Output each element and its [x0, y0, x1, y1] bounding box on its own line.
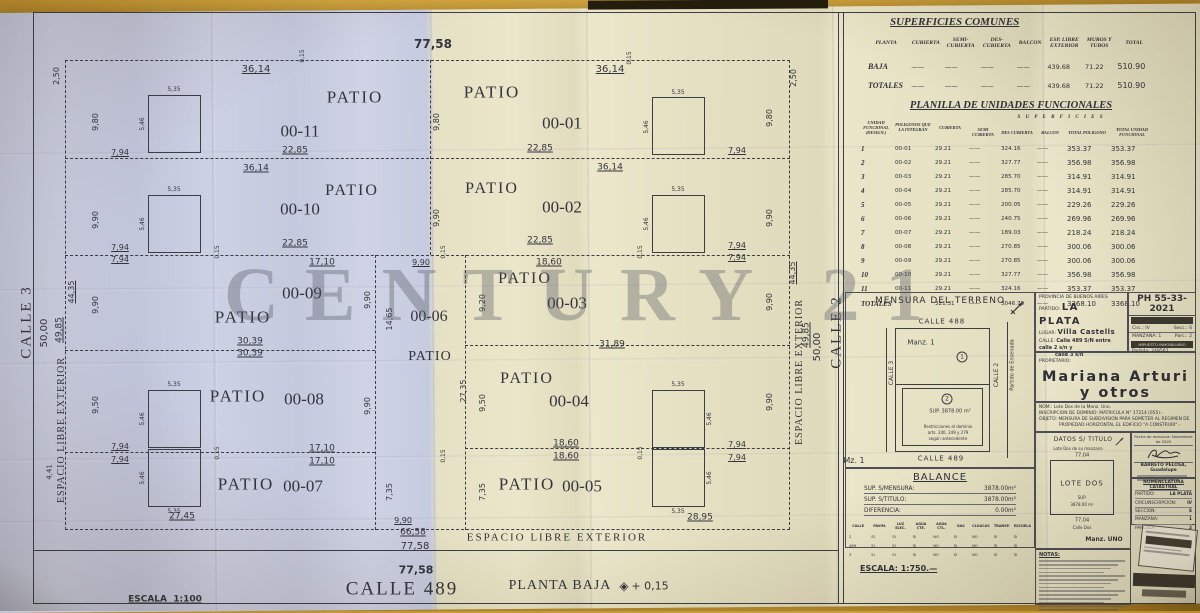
table-cell: SI [891, 542, 909, 549]
ph-number-block: PH 55-33-2021 Circ.: IV Secc.: S MANZANA… [1128, 292, 1196, 352]
table-cell: 2 [860, 157, 892, 169]
table-cell: 29.21 [934, 241, 966, 253]
balance-label: SUP. S/TITULO: [864, 497, 906, 503]
column-header: ESCUELA [1013, 521, 1032, 531]
table-cell: SI [912, 533, 930, 540]
column-header: CALLE [848, 521, 868, 531]
table-cell: SI [870, 551, 889, 558]
table-cell: 3 [848, 551, 868, 558]
superficies-comunes-title: SUPERFICIES COMUNES [862, 16, 1154, 28]
manzana-value: MANZANA: 1 [1132, 334, 1161, 339]
column-header: TRANSP. [993, 521, 1011, 531]
parc-value: Parc.: 2 [1175, 334, 1192, 339]
building-footprint [148, 195, 201, 253]
table-cell: —— [968, 185, 998, 197]
lugar-value: Villa Castells [1057, 328, 1115, 336]
table-cell: 29.21 [934, 171, 966, 183]
table-cell: 285.70 [1000, 171, 1034, 183]
nomenclatura-label: MANZANA: [1135, 517, 1158, 522]
balance-label: DIFERENCIA: [864, 508, 901, 514]
table-cell: 189.03 [1000, 227, 1034, 239]
balance-label: SUP. S/MENSURA: [864, 486, 914, 492]
table-cell: SI [953, 533, 969, 540]
plan-line [33, 550, 838, 551]
table-cell: 356.98 [1066, 269, 1108, 281]
table-cell: SI [870, 533, 889, 540]
table-cell: 00-08 [894, 241, 932, 253]
column-header: PLANTA [864, 30, 908, 56]
table-cell: 29.21 [934, 213, 966, 225]
building-footprint [652, 195, 705, 253]
table-cell: 00-01 [894, 143, 932, 155]
table-cell: 29.21 [934, 199, 966, 211]
table-cell: —— [910, 77, 941, 94]
building-footprint [652, 390, 705, 448]
column-header: CLOACAS [971, 521, 991, 531]
table-cell: SI [1013, 542, 1032, 549]
table-cell: 2 [848, 533, 868, 540]
table-cell: 270.85 [1000, 241, 1034, 253]
table-cell: 29.21 [934, 255, 966, 267]
table-cell: —— [910, 58, 941, 75]
table-cell: 353.37 [1110, 143, 1154, 155]
table-cell: —— [1036, 157, 1064, 169]
table-cell: 300.06 [1066, 255, 1108, 267]
building-footprint [148, 390, 201, 448]
table-cell: —— [980, 58, 1014, 75]
table-row: 300-0329.21——285.70——314.91314.91 [860, 171, 1154, 183]
table-cell: BAJA [864, 58, 908, 75]
table-cell: —— [944, 58, 978, 75]
table-row: 700-0729.21——189.03——218.24218.24 [860, 227, 1154, 239]
table-cell: —— [1016, 77, 1044, 94]
planilla-title: PLANILLA DE UNIDADES FUNCIONALES [858, 100, 1164, 111]
column-header: TOTAL POLIGONO [1066, 123, 1108, 141]
table-cell: 29.21 [934, 269, 966, 281]
table-cell: 270.85 [1000, 255, 1034, 267]
superficies-comunes-section: SUPERFICIES COMUNES PLANTACUBIERTASEMI- … [862, 16, 1154, 100]
nomenclatura-value: IV [1187, 501, 1192, 506]
table-cell: 229.26 [1110, 199, 1154, 211]
column-header: ESP. LIBRE EXTERIOR [1046, 30, 1082, 56]
nomenclatura-row: CIRCUNSCRIPCION:IV [1135, 498, 1192, 506]
table-cell: —— [980, 77, 1014, 94]
text-bar [1137, 475, 1187, 477]
column-header: DES- CUBIERTA [980, 30, 1014, 56]
table-cell: 300.06 [1110, 241, 1154, 253]
dashed-boundary [65, 158, 790, 159]
text-bar [1039, 590, 1125, 592]
table-cell: SI [912, 542, 930, 549]
approval-stamp [1138, 524, 1198, 572]
table-cell: SI [870, 542, 889, 549]
table-cell: SI [1013, 551, 1032, 558]
column-header: AGUA CTL. [932, 521, 950, 531]
table-row: 100-0129.21——324.16——353.37353.37 [860, 143, 1154, 155]
column-header: BALCON [1036, 123, 1064, 141]
table-row: 489SISISINOSINOSISI [848, 542, 1032, 549]
table-cell: 218.24 [1066, 227, 1108, 239]
ink-stamp [1142, 589, 1186, 598]
balance-row: SUP. S/TITULO:3878.00m² [864, 497, 1016, 505]
agrimensor-nombre: BARRETO PELOSA, Guadalupe [1134, 462, 1193, 473]
table-row: BAJA————————439.6871.22510.90 [864, 58, 1152, 75]
table-cell: 229.26 [1066, 199, 1108, 211]
objeto-line-1: OBJETO: MENSURA DE SUBDIVISION PARA SOME… [1039, 417, 1192, 423]
table-cell: SI [993, 542, 1011, 549]
table-cell: —— [968, 269, 998, 281]
table-row: 2SISISINOSINOSISI [848, 533, 1032, 540]
table-cell: 327.77 [1000, 269, 1034, 281]
text-bar [1039, 606, 1125, 608]
table-cell: 314.91 [1110, 185, 1154, 197]
location-block: PROVINCIA DE BUENOS AIRES PARTIDO: LA PL… [1035, 292, 1128, 352]
table-cell: 00-04 [894, 185, 932, 197]
firma-block: Fecha de mensura: Noviembre de 2020 BARR… [1131, 432, 1196, 478]
table-cell: NO [971, 551, 991, 558]
table-cell: 29.21 [934, 227, 966, 239]
table-cell: —— [968, 171, 998, 183]
mensura-title: MENSURA DEL TERRENO [846, 296, 1034, 306]
balance-title: BALANCE [846, 472, 1034, 483]
column-header: CUBIERTA [934, 113, 966, 141]
calle-label: CALLE: [1039, 339, 1055, 344]
table-cell: 356.98 [1110, 157, 1154, 169]
nomenclatura-value: 1 [1189, 517, 1192, 522]
column-header: SEMI- CUBIERTA [944, 30, 978, 56]
text-bar [1039, 572, 1104, 574]
dashed-boundary [465, 448, 790, 449]
column-header: S U P E R F I C I E S [968, 113, 1154, 121]
table-cell: 439.68 [1046, 77, 1082, 94]
table-cell: —— [1036, 199, 1064, 211]
table-row: 500-0529.21——200.05——229.26229.26 [860, 199, 1154, 211]
partido-value: LA PLATA [1039, 302, 1081, 327]
dashed-boundary [465, 255, 466, 530]
circ-value: Circ.: IV [1132, 326, 1150, 331]
table-row: 600-0629.21——240.75——269.96269.96 [860, 213, 1154, 225]
owner-block: Mariana Arturi y otros [1035, 352, 1196, 402]
dashed-boundary [65, 452, 375, 453]
table-cell: SI [912, 551, 930, 558]
nomenclatura-title: NOMENCLATURA CATASTRAL [1135, 480, 1192, 490]
building-footprint [652, 97, 705, 155]
inscripcion-block: NOM.: Lote Dos de la Manz. Uno. INSCRIPC… [1035, 402, 1196, 432]
ink-stamp [1133, 573, 1195, 588]
table-cell: 1 [860, 143, 892, 155]
table-cell: 269.96 [1066, 213, 1108, 225]
table-cell: —— [944, 77, 978, 94]
table-cell: NO [971, 533, 991, 540]
table-cell: 314.91 [1110, 171, 1154, 183]
impuesto-band: IMPUESTO INMOBILIARIO [1131, 341, 1193, 348]
table-cell: —— [1016, 58, 1044, 75]
table-cell: TOTALES [864, 77, 908, 94]
table-row: 400-0429.21——285.70——314.91314.91 [860, 185, 1154, 197]
table-cell: SI [953, 551, 969, 558]
table-cell: 00-02 [894, 157, 932, 169]
balance-row: DIFERENCIA:0.00m² [864, 508, 1016, 516]
building-footprint [148, 449, 201, 507]
table-cell: 00-09 [894, 255, 932, 267]
signature-icon [1144, 446, 1184, 462]
nomenclatura-row: MANZANA:1 [1135, 515, 1192, 523]
dashed-boundary [65, 350, 375, 351]
table-cell: 324.16 [1000, 143, 1034, 155]
table-cell: 269.96 [1110, 213, 1154, 225]
nomenclatura-label: SECCION: [1135, 509, 1156, 514]
table-cell: NO [932, 533, 950, 540]
table-cell: 6 [860, 213, 892, 225]
text-bar [1039, 602, 1104, 604]
table-cell: SI [993, 551, 1011, 558]
column-header: BALCON [1016, 30, 1044, 56]
north-arrow-icon [1114, 436, 1125, 447]
table-cell: 218.24 [1110, 227, 1154, 239]
table-cell: —— [968, 227, 998, 239]
plan-line [838, 12, 839, 604]
table-cell: 00-06 [894, 213, 932, 225]
lugar-label: LUGAR: [1039, 331, 1056, 336]
dashed-boundary [465, 345, 790, 346]
table-cell: 29.21 [934, 143, 966, 155]
table-cell: SI [891, 551, 909, 558]
table-cell: SI [891, 533, 909, 540]
column-header: TOTAL UNIDAD FUNCIONAL [1110, 123, 1154, 141]
text-bar [1039, 587, 1104, 589]
text-bar [1039, 568, 1111, 570]
table-cell: 439.68 [1046, 58, 1082, 75]
table-cell: 9 [860, 255, 892, 267]
north-arrow-icon [1008, 299, 1026, 317]
column-header: SEMI CUBIERTA [968, 123, 998, 141]
resolucion-band [1131, 317, 1193, 324]
escala-750: ESCALA: 1:750.— [860, 564, 1034, 573]
table-cell: 8 [860, 241, 892, 253]
table-cell: NO [971, 542, 991, 549]
table-cell: SI [1013, 533, 1032, 540]
table-cell: 00-03 [894, 171, 932, 183]
secc-value: Secc.: S [1174, 326, 1192, 331]
table-cell: —— [968, 143, 998, 155]
table-cell: 353.37 [1066, 143, 1108, 155]
table-cell: 327.77 [1000, 157, 1034, 169]
nomenclatura-label: PARTIDO: [1135, 492, 1155, 497]
table-cell: NO [932, 551, 950, 558]
table-cell: 4 [860, 185, 892, 197]
column-header: POLIGONOS QUE LA INTEGRAN [894, 113, 932, 141]
objeto-line-2: PROPIEDAD HORIZONTAL EL EDIFICIO "A CONS… [1039, 423, 1192, 429]
column-header: DES CUBIERTA [1000, 123, 1034, 141]
table-cell: 5 [860, 199, 892, 211]
column-header: PAVIM. [870, 521, 889, 531]
text-bar [1039, 598, 1111, 600]
table-cell: 356.98 [1066, 157, 1108, 169]
dashed-boundary [430, 60, 431, 255]
table-cell: 356.98 [1110, 269, 1154, 281]
dashed-boundary [375, 255, 376, 530]
table-cell: —— [1036, 171, 1064, 183]
building-footprint [652, 449, 705, 507]
table-cell: —— [1036, 269, 1064, 281]
column-header: TOTAL [1116, 30, 1152, 56]
table-row: 800-0829.21——270.85——300.06300.06 [860, 241, 1154, 253]
table-cell: SI [993, 533, 1011, 540]
table-cell: —— [1036, 227, 1064, 239]
column-header: CUBIERTA [910, 30, 941, 56]
ph-numero: PH 55-33-2021 [1129, 293, 1195, 316]
planilla-table: UNIDAD FUNCIONAL (DESIGN.)POLIGONOS QUE … [858, 111, 1156, 313]
balance-value: 0.00m² [995, 508, 1016, 514]
propietario-name: Mariana Arturi y otros [1036, 369, 1195, 401]
text-bar [1039, 583, 1111, 585]
table-cell: 240.75 [1000, 213, 1034, 225]
column-header: GAS [953, 521, 969, 531]
table-cell: —— [1036, 213, 1064, 225]
table-cell: 489 [848, 542, 868, 549]
text-bar [1039, 575, 1125, 577]
building-footprint [148, 95, 201, 153]
notas-block: NOTAS: [1035, 549, 1131, 605]
table-cell: 3 [860, 171, 892, 183]
table-cell: 300.06 [1110, 255, 1154, 267]
table-row: 1000-1029.21——327.77——356.98356.98 [860, 269, 1154, 281]
table-row: 200-0229.21——327.77——356.98356.98 [860, 157, 1154, 169]
balance-value: 3878.00m² [984, 497, 1016, 503]
balance-rows: SUP. S/MENSURA:3878.00m²SUP. S/TITULO:38… [846, 486, 1034, 516]
table-row: 900-0929.21——270.85——300.06300.06 [860, 255, 1154, 267]
column-header: LUZ ELEC. [891, 521, 909, 531]
text-bar [1039, 560, 1125, 562]
table-cell: 7 [860, 227, 892, 239]
table-cell: 71.22 [1084, 58, 1114, 75]
column-header: MUROS Y TUBOS [1084, 30, 1114, 56]
table-cell: 510.90 [1116, 58, 1152, 75]
nomenclatura-block: NOMENCLATURA CATASTRAL PARTIDO:LA PLATAC… [1131, 478, 1196, 525]
nomenclatura-value: LA PLATA [1170, 492, 1192, 497]
balance-value: 3878.00m² [984, 486, 1016, 492]
table-row: 3SISISINOSINOSISI [848, 551, 1032, 558]
table-cell: —— [1036, 185, 1064, 197]
table-cell: —— [1036, 255, 1064, 267]
text-bar [1039, 564, 1118, 566]
text-bar [1039, 579, 1118, 581]
partido-label: PARTIDO: [1039, 307, 1060, 312]
table-cell: SI [953, 542, 969, 549]
table-cell: —— [968, 157, 998, 169]
table-cell: 200.05 [1000, 199, 1034, 211]
fecha-mensura: Fecha de mensura: Noviembre de 2020 [1134, 434, 1193, 446]
column-header: AGUA CTE. [912, 521, 930, 531]
superficies-comunes-table: PLANTACUBIERTASEMI- CUBIERTADES- CUBIERT… [862, 28, 1154, 96]
table-cell: 00-07 [894, 227, 932, 239]
table-cell: 00-05 [894, 199, 932, 211]
nomenclatura-label: CIRCUNSCRIPCION: [1135, 501, 1176, 506]
column-header: UNIDAD FUNCIONAL (DESIGN.) [860, 113, 892, 141]
table-cell: 300.06 [1066, 241, 1108, 253]
services-table: CALLEPAVIM.LUZ ELEC.AGUA CTE.AGUA CTL.GA… [846, 519, 1034, 560]
nomenclatura-row: PARTIDO:LA PLATA [1135, 490, 1192, 498]
table-cell: 285.70 [1000, 185, 1034, 197]
table-cell: 00-10 [894, 269, 932, 281]
table-cell: 510.90 [1116, 77, 1152, 94]
table-cell: —— [968, 199, 998, 211]
table-cell: —— [1036, 143, 1064, 155]
table-cell: NO [932, 542, 950, 549]
nomenclatura-value: S [1189, 509, 1192, 514]
datos-titulo-section: DATOS S/ TITULO [1035, 432, 1131, 549]
balance-section: BALANCE SUP. S/MENSURA:3878.00m²SUP. S/T… [845, 468, 1035, 548]
text-bar [1039, 594, 1118, 596]
dashed-boundary [65, 255, 790, 256]
table-cell: 314.91 [1066, 185, 1108, 197]
table-cell: —— [968, 241, 998, 253]
planilla-section: PLANILLA DE UNIDADES FUNCIONALES UNIDAD … [858, 100, 1164, 296]
balance-row: SUP. S/MENSURA:3878.00m² [864, 486, 1016, 494]
table-cell: —— [968, 213, 998, 225]
nomenclatura-row: SECCION:S [1135, 507, 1192, 515]
table-cell: 314.91 [1066, 171, 1108, 183]
table-cell: —— [968, 255, 998, 267]
mensura-terreno-section: MENSURA DEL TERRENO [845, 292, 1035, 468]
plan-line [843, 12, 844, 604]
table-cell: 29.21 [934, 185, 966, 197]
table-cell: 10 [860, 269, 892, 281]
table-cell: —— [1036, 241, 1064, 253]
table-cell: 71.22 [1084, 77, 1114, 94]
table-cell: 29.21 [934, 157, 966, 169]
notas-title: NOTAS: [1039, 552, 1127, 558]
table-row: TOTALES————————439.6871.22510.90 [864, 77, 1152, 94]
